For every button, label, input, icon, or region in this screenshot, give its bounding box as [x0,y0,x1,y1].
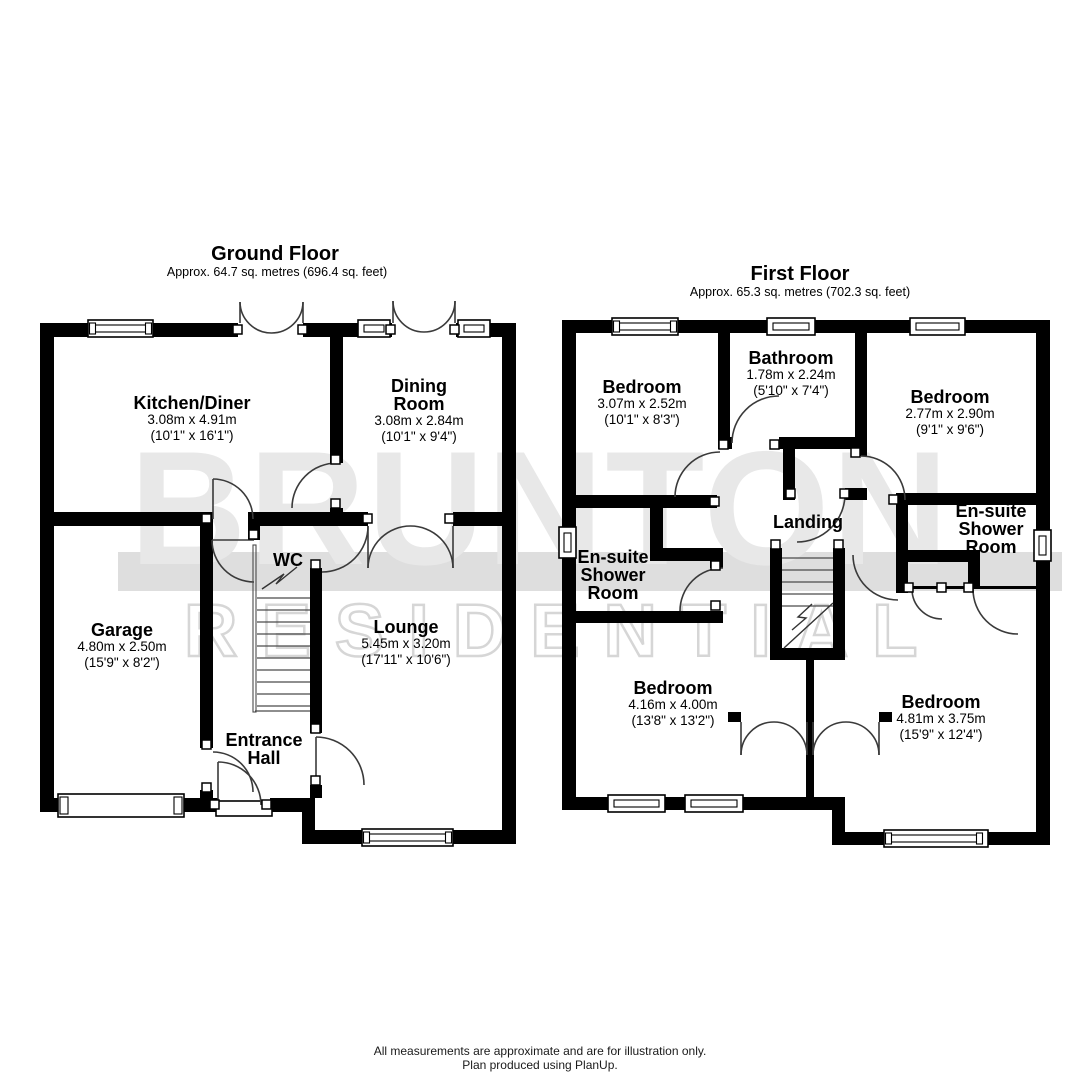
room-dim-metric: 1.78m x 2.24m [746,367,835,383]
room-dim-metric: 2.77m x 2.90m [905,406,994,422]
room-label-bathroom: Bathroom 1.78m x 2.24m (5'10" x 7'4") [746,349,835,398]
room-name: Garage [77,621,166,639]
room-dim-metric: 4.80m x 2.50m [77,639,166,655]
ground-floor-title: Ground Floor [211,243,339,266]
room-dim-imperial: (13'8" x 13'2") [628,713,717,729]
room-name: Bedroom [628,679,717,697]
room-label-garage: Garage 4.80m x 2.50m (15'9" x 8'2") [77,621,166,670]
footer-credit: Plan produced using PlanUp. [462,1058,617,1072]
room-name: En-suite Shower Room [577,548,648,602]
room-dim-imperial: (10'1" x 16'1") [133,428,250,444]
room-dim-imperial: (10'1" x 9'4") [374,429,463,445]
first-floor-title: First Floor [751,263,850,286]
room-dim-metric: 4.81m x 3.75m [896,711,985,727]
floorplan-page: BRUNTON RESIDENTIAL [0,0,1080,1080]
room-dim-metric: 3.08m x 2.84m [374,413,463,429]
room-dim-imperial: (9'1" x 9'6") [905,422,994,438]
room-name: Dining Room [374,377,463,413]
room-dim-imperial: (15'9" x 12'4") [896,727,985,743]
room-dim-metric: 4.16m x 4.00m [628,697,717,713]
garage-door [58,794,184,817]
room-dim-metric: 3.07m x 2.52m [597,396,686,412]
ground-floor-stairs [253,545,310,712]
room-name: Bedroom [597,378,686,396]
room-name: En-suite Shower Room [955,502,1026,556]
room-dim-imperial: (17'11" x 10'6") [361,652,451,668]
room-dim-imperial: (5'10" x 7'4") [746,383,835,399]
room-label-bedroom-bottom-left: Bedroom 4.16m x 4.00m (13'8" x 13'2") [628,679,717,728]
ground-floor-subtitle: Approx. 64.7 sq. metres (696.4 sq. feet) [167,265,387,279]
room-name: Bedroom [896,693,985,711]
room-name: Bathroom [746,349,835,367]
room-label-ensuite-left: En-suite Shower Room [577,548,648,602]
room-label-kitchen: Kitchen/Diner 3.08m x 4.91m (10'1" x 16'… [133,394,250,443]
room-dim-imperial: (15'9" x 8'2") [77,655,166,671]
room-dim-metric: 3.08m x 4.91m [133,412,250,428]
room-label-dining: Dining Room 3.08m x 2.84m (10'1" x 9'4") [374,377,463,444]
room-label-bedroom-bottom-right: Bedroom 4.81m x 3.75m (15'9" x 12'4") [896,693,985,742]
footer-disclaimer: All measurements are approximate and are… [374,1044,707,1058]
room-label-ensuite-right: En-suite Shower Room [955,502,1026,556]
room-name: Entrance Hall [225,731,302,767]
room-dim-imperial: (10'1" x 8'3") [597,412,686,428]
room-name: Landing [773,513,843,531]
floor-plan-canvas [0,0,1080,1080]
first-floor-stairs [782,558,833,648]
room-name: Lounge [361,618,451,636]
room-dim-metric: 5.45m x 3.20m [361,636,451,652]
room-label-lounge: Lounge 5.45m x 3.20m (17'11" x 10'6") [361,618,451,667]
room-label-bedroom-top-right: Bedroom 2.77m x 2.90m (9'1" x 9'6") [905,388,994,437]
room-label-wc: WC [273,551,303,569]
room-name: Kitchen/Diner [133,394,250,412]
room-label-entrance-hall: Entrance Hall [225,731,302,767]
room-label-bedroom-top-left: Bedroom 3.07m x 2.52m (10'1" x 8'3") [597,378,686,427]
room-name: WC [273,551,303,569]
room-name: Bedroom [905,388,994,406]
first-floor-subtitle: Approx. 65.3 sq. metres (702.3 sq. feet) [690,285,910,299]
room-label-landing: Landing [773,513,843,531]
